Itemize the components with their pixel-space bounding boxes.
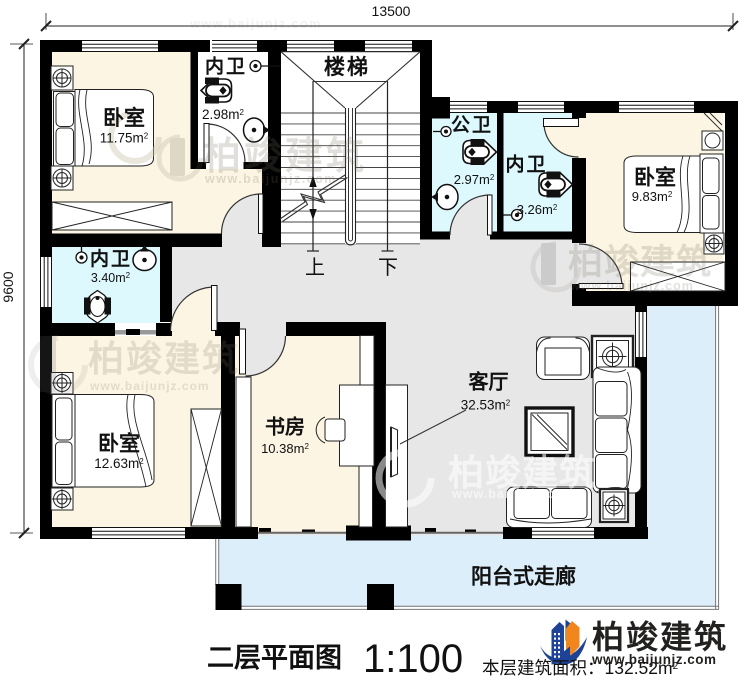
svg-text:内卫: 内卫	[205, 55, 247, 78]
svg-text:卧室: 卧室	[98, 432, 140, 456]
svg-text:书房: 书房	[265, 415, 305, 439]
svg-text:www.baijunjz.com: www.baijunjz.com	[569, 279, 694, 293]
svg-text:13500: 13500	[372, 3, 411, 19]
svg-text:12.63m2: 12.63m2	[94, 456, 144, 471]
svg-text:www.baijunjz.com: www.baijunjz.com	[189, 17, 322, 31]
svg-text:内卫: 内卫	[505, 153, 547, 176]
svg-text:客厅: 客厅	[468, 370, 509, 394]
svg-text:阳台式走廊: 阳台式走廊	[471, 565, 576, 589]
svg-text:2.98m2: 2.98m2	[202, 107, 245, 122]
svg-text:柏竣建筑: 柏竣建筑	[88, 338, 240, 379]
svg-text:上: 上	[305, 256, 325, 279]
svg-text:公卫: 公卫	[451, 114, 493, 136]
svg-text:内卫: 内卫	[90, 247, 132, 270]
svg-text:柏竣建筑: 柏竣建筑	[568, 242, 712, 282]
svg-text:10.38m2: 10.38m2	[261, 441, 309, 456]
svg-text:卧室: 卧室	[103, 106, 145, 130]
svg-text:3.40m2: 3.40m2	[91, 271, 131, 285]
svg-text:柏竣建筑: 柏竣建筑	[592, 619, 728, 655]
svg-text:32.53m2: 32.53m2	[461, 398, 511, 413]
svg-text:9.83m2: 9.83m2	[632, 189, 673, 204]
svg-text:卧室: 卧室	[634, 166, 676, 190]
svg-text:3.26m2: 3.26m2	[517, 202, 558, 217]
svg-text:www.baijunjz.com: www.baijunjz.com	[451, 487, 576, 501]
svg-text:1:100: 1:100	[363, 637, 463, 681]
svg-text:二层平面图: 二层平面图	[207, 643, 342, 673]
svg-text:www.baijunjz.com: www.baijunjz.com	[89, 379, 210, 393]
svg-text:11.75m2: 11.75m2	[100, 131, 149, 146]
svg-text:9600: 9600	[0, 271, 16, 302]
svg-text:下: 下	[378, 257, 398, 279]
svg-text:www.baijunjz.com: www.baijunjz.com	[204, 172, 337, 186]
svg-text:2.97m2: 2.97m2	[454, 172, 495, 187]
svg-text:www.baijunjz.com: www.baijunjz.com	[591, 652, 717, 667]
svg-text:楼梯: 楼梯	[324, 55, 370, 79]
